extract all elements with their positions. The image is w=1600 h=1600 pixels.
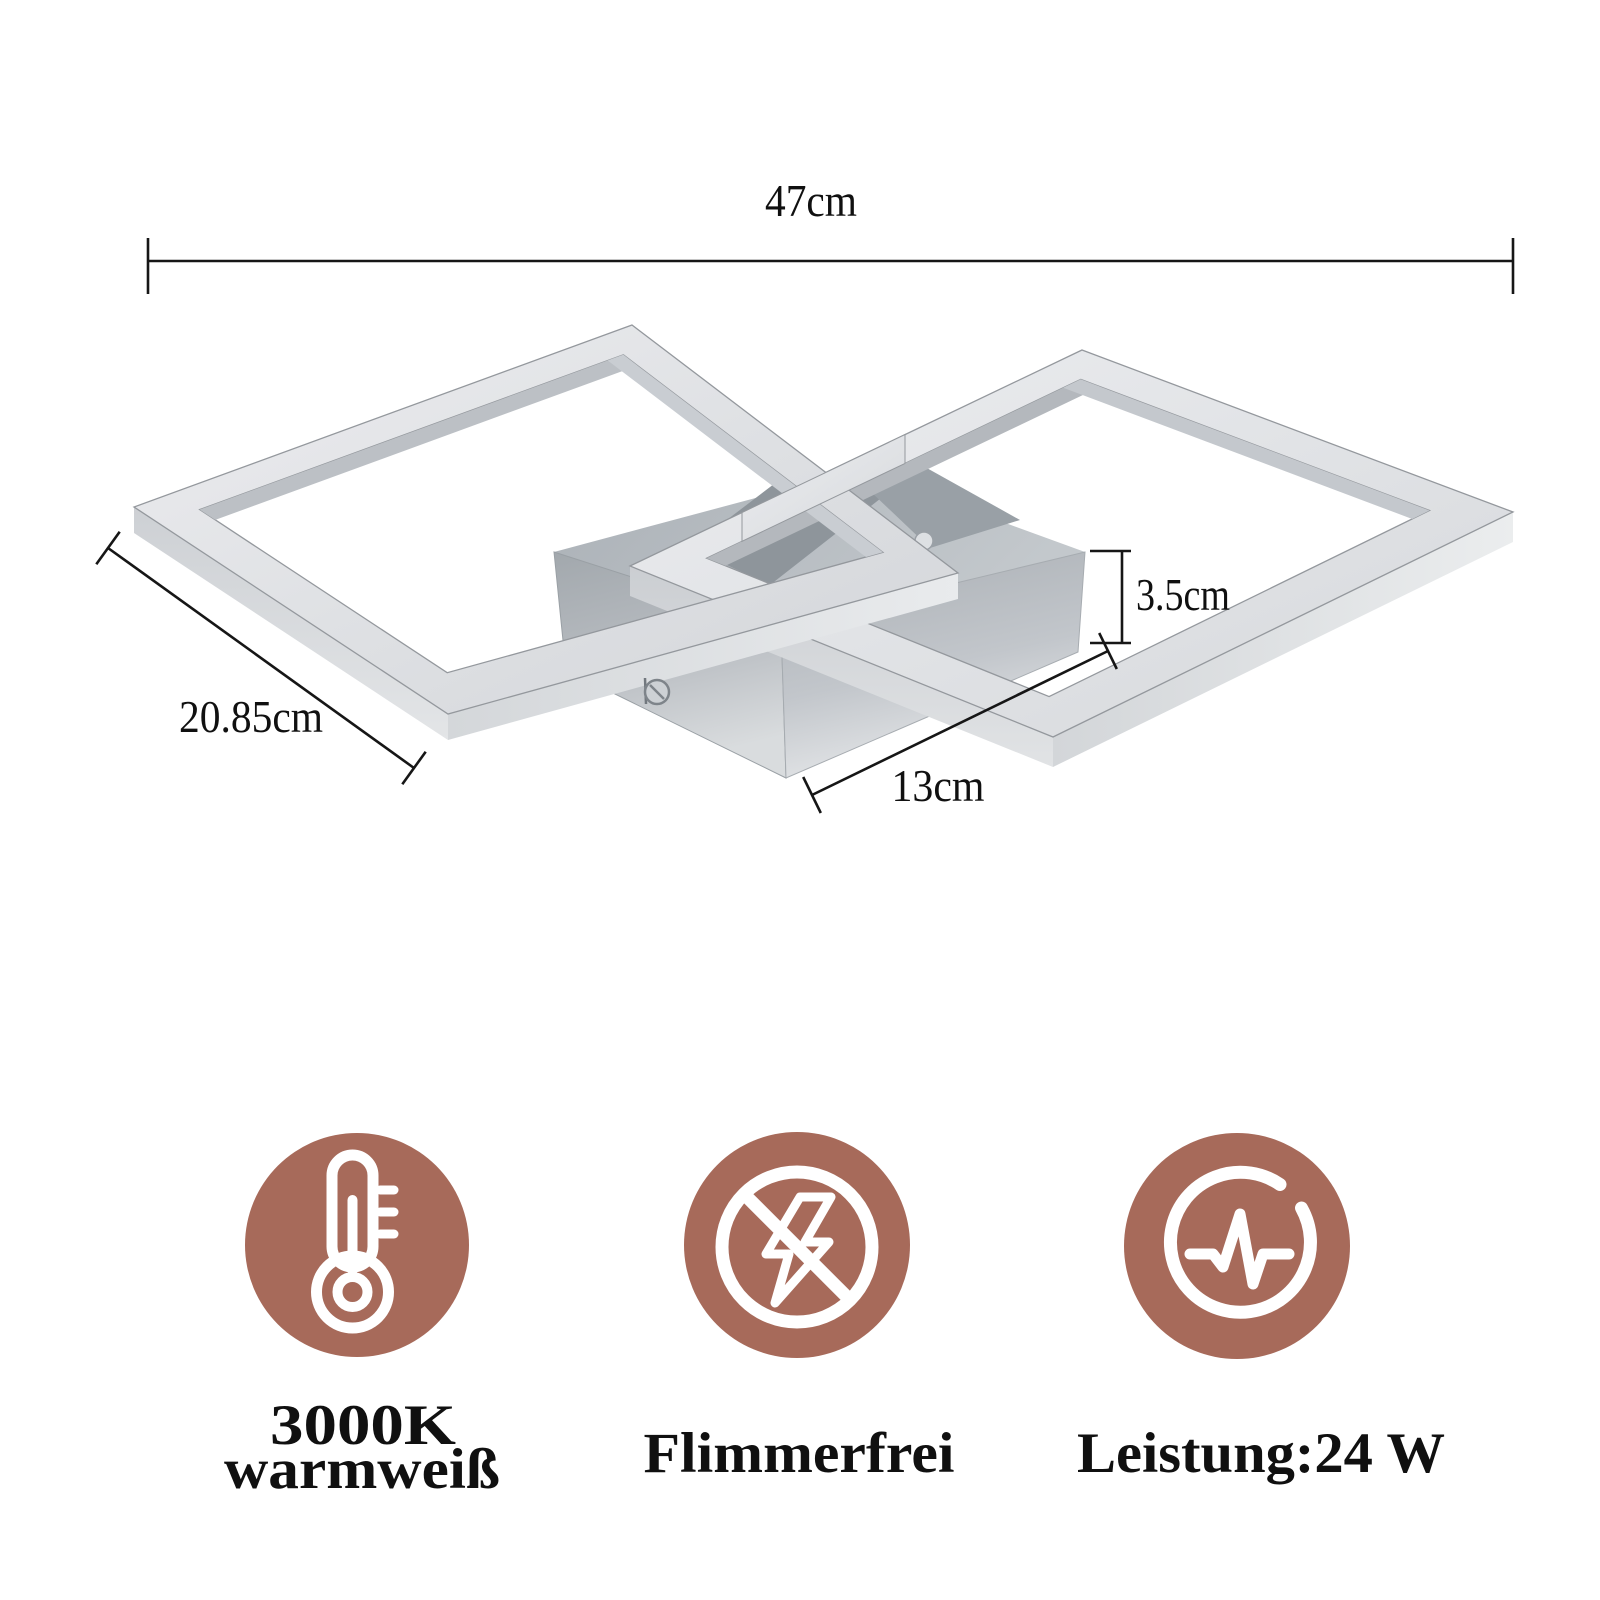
svg-text:20.85cm: 20.85cm bbox=[179, 691, 323, 742]
svg-text:3.5cm: 3.5cm bbox=[1136, 569, 1230, 620]
svg-text:Leistung:24 W: Leistung:24 W bbox=[1077, 1422, 1445, 1485]
svg-text:13cm: 13cm bbox=[892, 760, 985, 811]
svg-text:47cm: 47cm bbox=[765, 175, 857, 226]
svg-text:Flimmerfrei: Flimmerfrei bbox=[644, 1422, 955, 1485]
svg-text:warmweiß: warmweiß bbox=[224, 1438, 500, 1501]
